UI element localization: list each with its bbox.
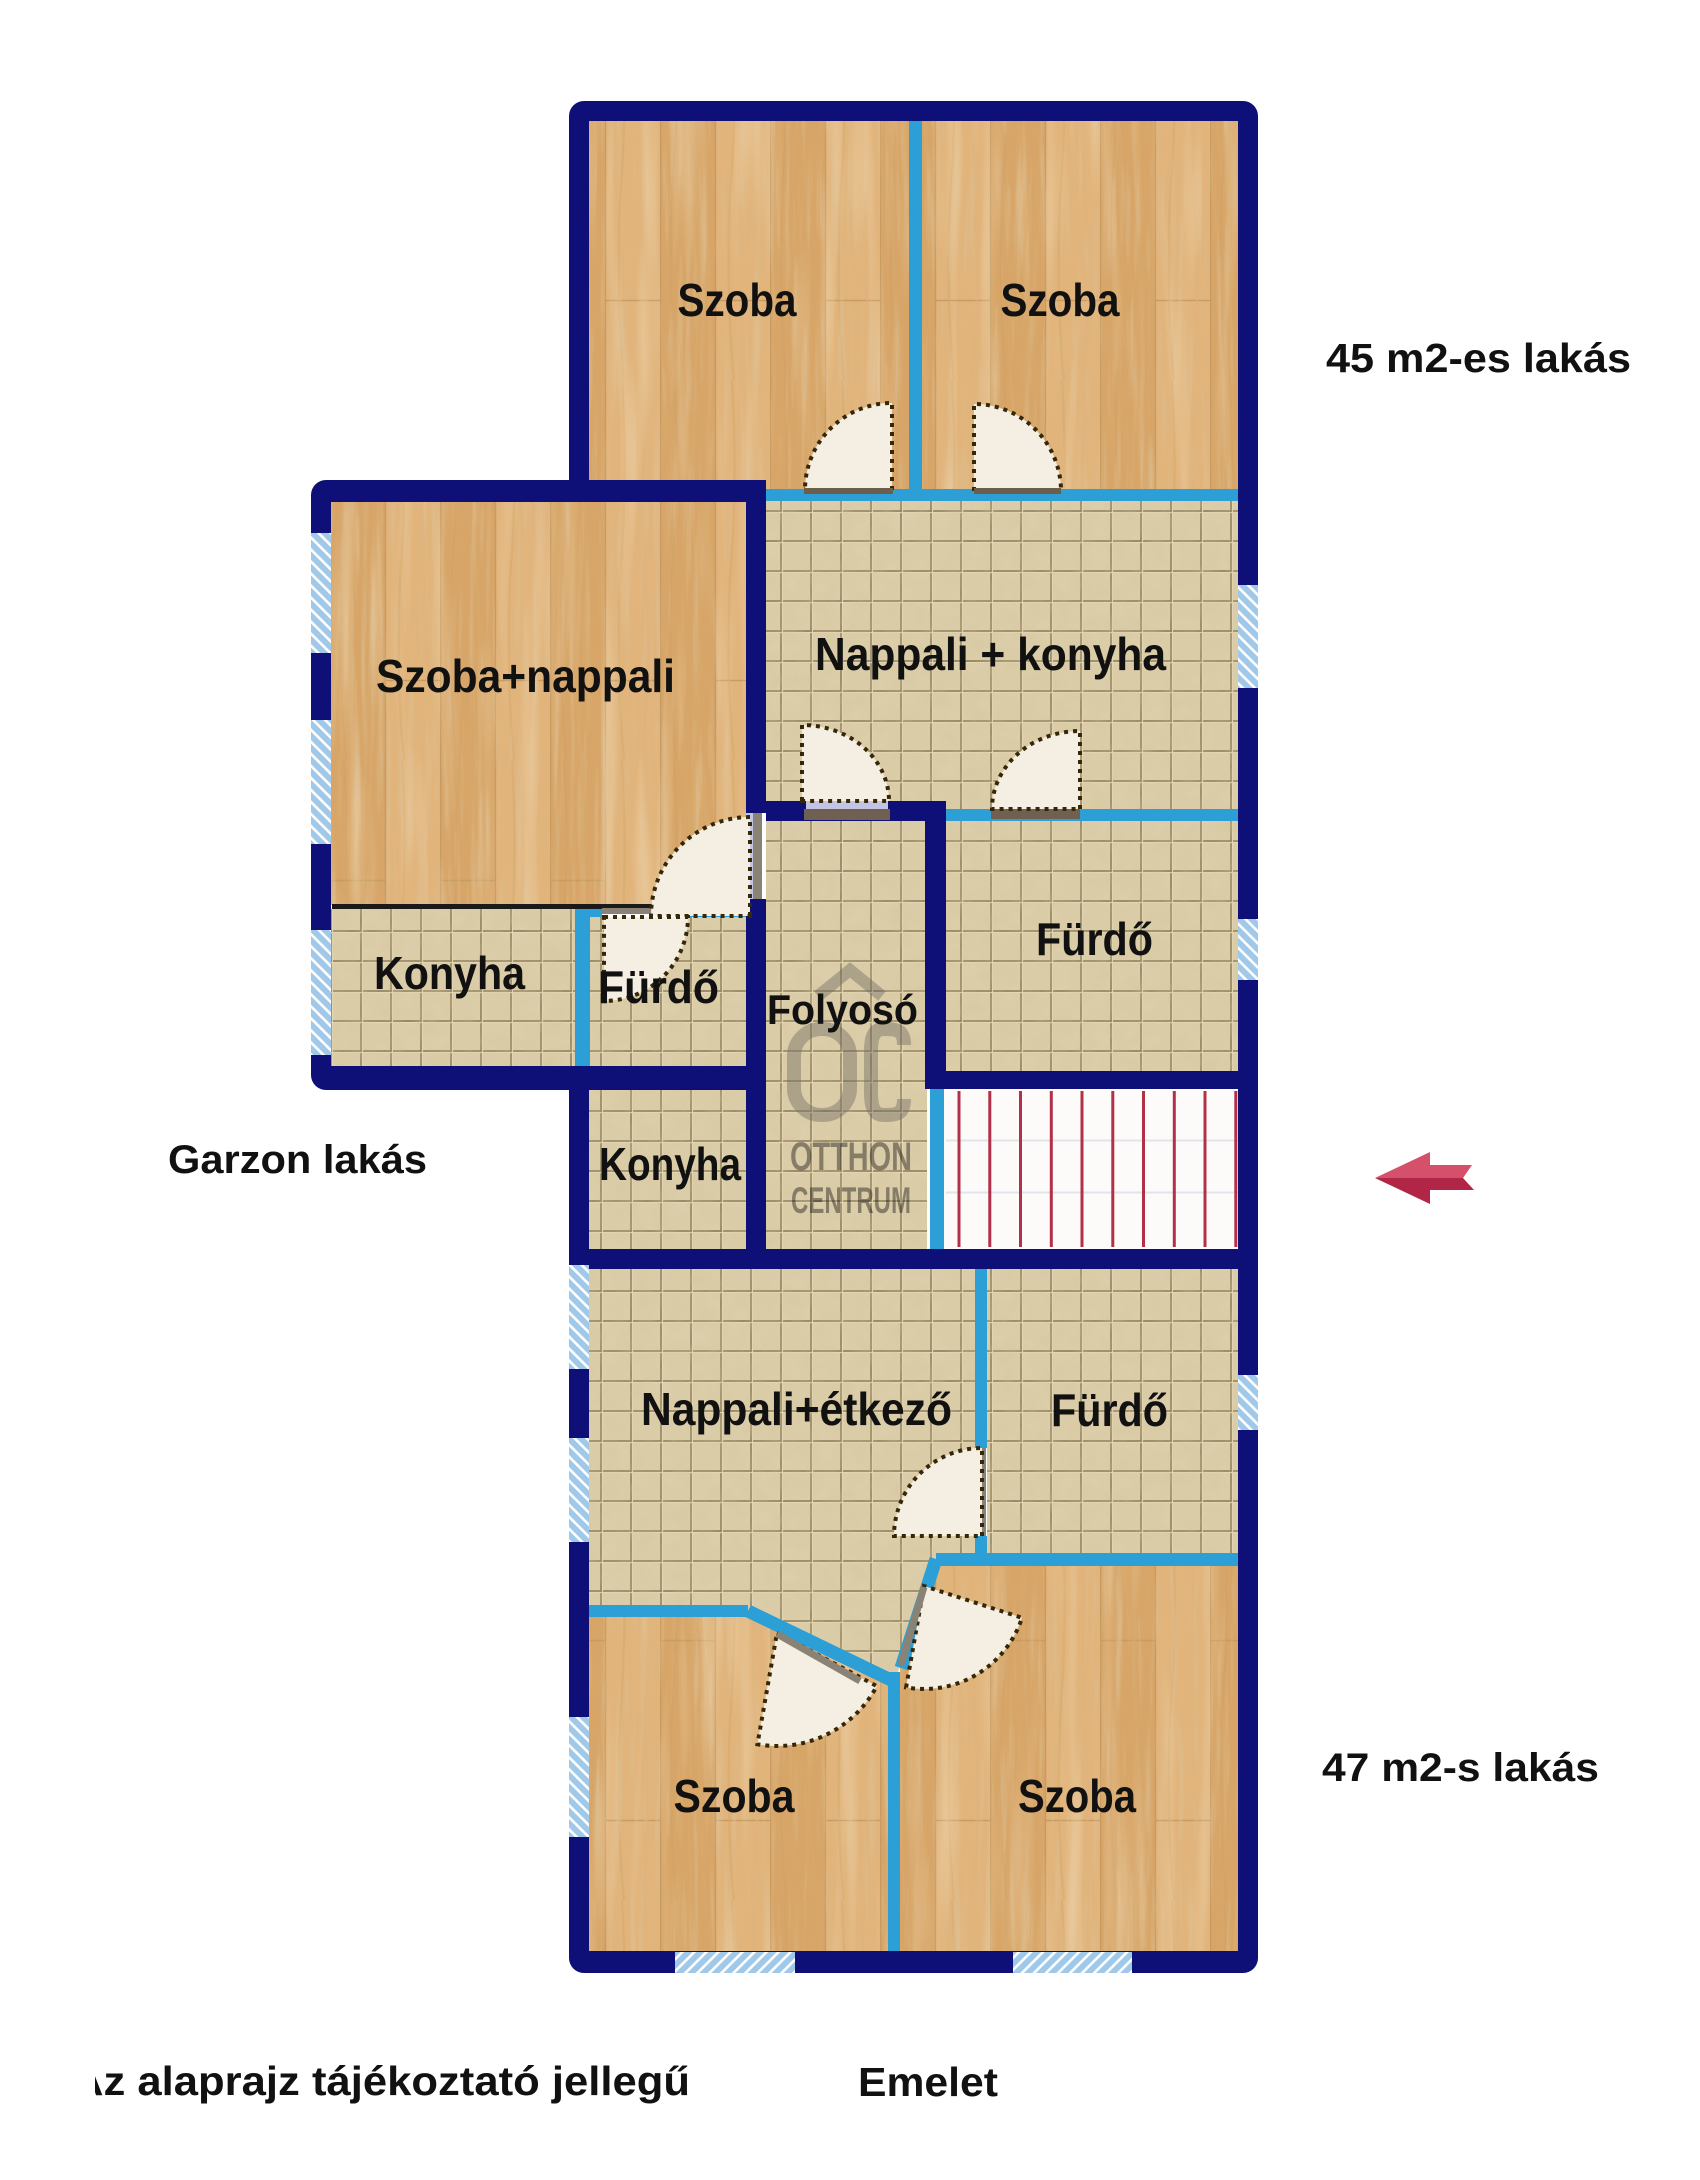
svg-text:47 m2-s lakás: 47 m2-s lakás — [1322, 1746, 1599, 1790]
svg-text:Folyosó: Folyosó — [767, 986, 918, 1033]
svg-text:Szoba: Szoba — [678, 274, 797, 326]
svg-text:Szoba: Szoba — [674, 1770, 795, 1822]
svg-text:Garzon lakás: Garzon lakás — [168, 1138, 427, 1182]
svg-text:Emelet: Emelet — [858, 2059, 998, 2105]
svg-text:Nappali + konyha: Nappali + konyha — [815, 628, 1166, 680]
svg-text:CENTRUM: CENTRUM — [791, 1180, 911, 1221]
svg-text:Fürdő: Fürdő — [1036, 913, 1153, 965]
svg-text:Az alaprajz tájékoztató jelleg: Az alaprajz tájékoztató jellegű — [72, 2058, 690, 2104]
svg-text:Fürdő: Fürdő — [1051, 1384, 1168, 1436]
svg-text:Fürdő: Fürdő — [598, 961, 719, 1013]
svg-text:OTTHON: OTTHON — [790, 1135, 912, 1179]
svg-text:Nappali+étkező: Nappali+étkező — [641, 1383, 952, 1435]
svg-text:Szoba: Szoba — [1001, 274, 1120, 326]
svg-text:Konyha: Konyha — [599, 1138, 741, 1190]
svg-text:Konyha: Konyha — [374, 947, 525, 999]
svg-text:Szoba+nappali: Szoba+nappali — [376, 650, 675, 702]
svg-text:45 m2-es lakás: 45 m2-es lakás — [1326, 335, 1631, 381]
svg-text:Szoba: Szoba — [1018, 1770, 1136, 1822]
